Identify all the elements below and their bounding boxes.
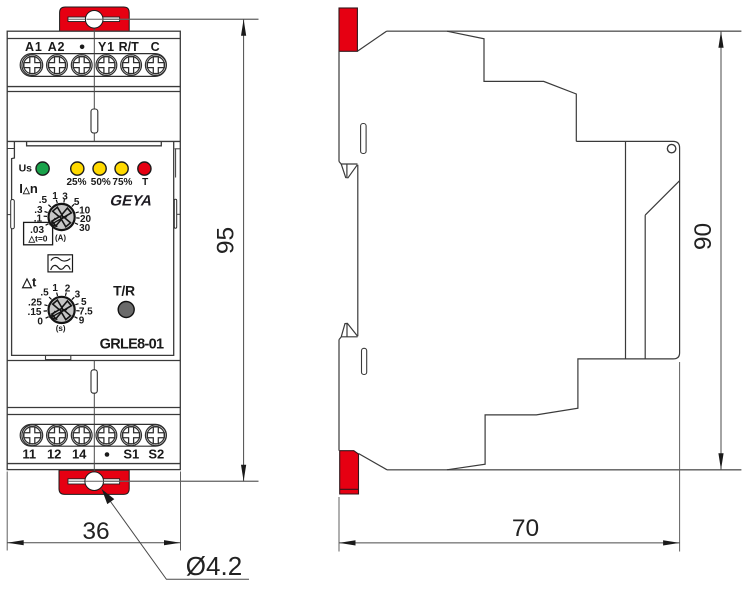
svg-text:(A): (A): [55, 234, 66, 243]
svg-text:Us: Us: [19, 163, 33, 175]
svg-text:70: 70: [512, 515, 539, 542]
svg-text:R/T: R/T: [119, 40, 140, 54]
svg-text:Ø4.2: Ø4.2: [186, 551, 242, 581]
svg-text:3: 3: [75, 289, 81, 300]
svg-text:14: 14: [72, 447, 87, 462]
svg-text:0: 0: [37, 316, 43, 327]
svg-text:S1: S1: [123, 447, 139, 462]
svg-text:GEYA: GEYA: [108, 193, 154, 210]
svg-text:3: 3: [62, 191, 68, 202]
svg-text:GRLE8-01: GRLE8-01: [100, 337, 164, 353]
svg-text:.25: .25: [28, 297, 42, 308]
svg-text:S2: S2: [148, 447, 164, 462]
svg-text:11: 11: [22, 447, 36, 462]
svg-text:T: T: [142, 177, 148, 188]
svg-text:36: 36: [82, 518, 109, 545]
svg-text:.15: .15: [28, 307, 42, 318]
svg-text:△t=0: △t=0: [27, 234, 47, 244]
svg-text:25%: 25%: [66, 177, 86, 188]
svg-text:2: 2: [65, 283, 71, 294]
svg-text:12: 12: [47, 447, 61, 462]
svg-text:△t: △t: [21, 274, 37, 289]
svg-text:A2: A2: [48, 40, 66, 54]
svg-text:A1: A1: [25, 40, 43, 54]
svg-text:C: C: [151, 40, 160, 54]
svg-text:75%: 75%: [112, 177, 132, 188]
svg-text:90: 90: [690, 223, 717, 250]
svg-text:50%: 50%: [91, 177, 111, 188]
svg-text:.1: .1: [34, 213, 43, 224]
svg-text:9: 9: [79, 316, 85, 327]
svg-text:(s): (s): [56, 324, 66, 333]
svg-text:1: 1: [52, 283, 58, 294]
svg-text:T/R: T/R: [113, 283, 135, 299]
svg-text:Y1: Y1: [98, 40, 115, 54]
svg-text:1: 1: [52, 191, 58, 202]
svg-text:95: 95: [213, 227, 240, 254]
svg-text:30: 30: [79, 223, 91, 234]
